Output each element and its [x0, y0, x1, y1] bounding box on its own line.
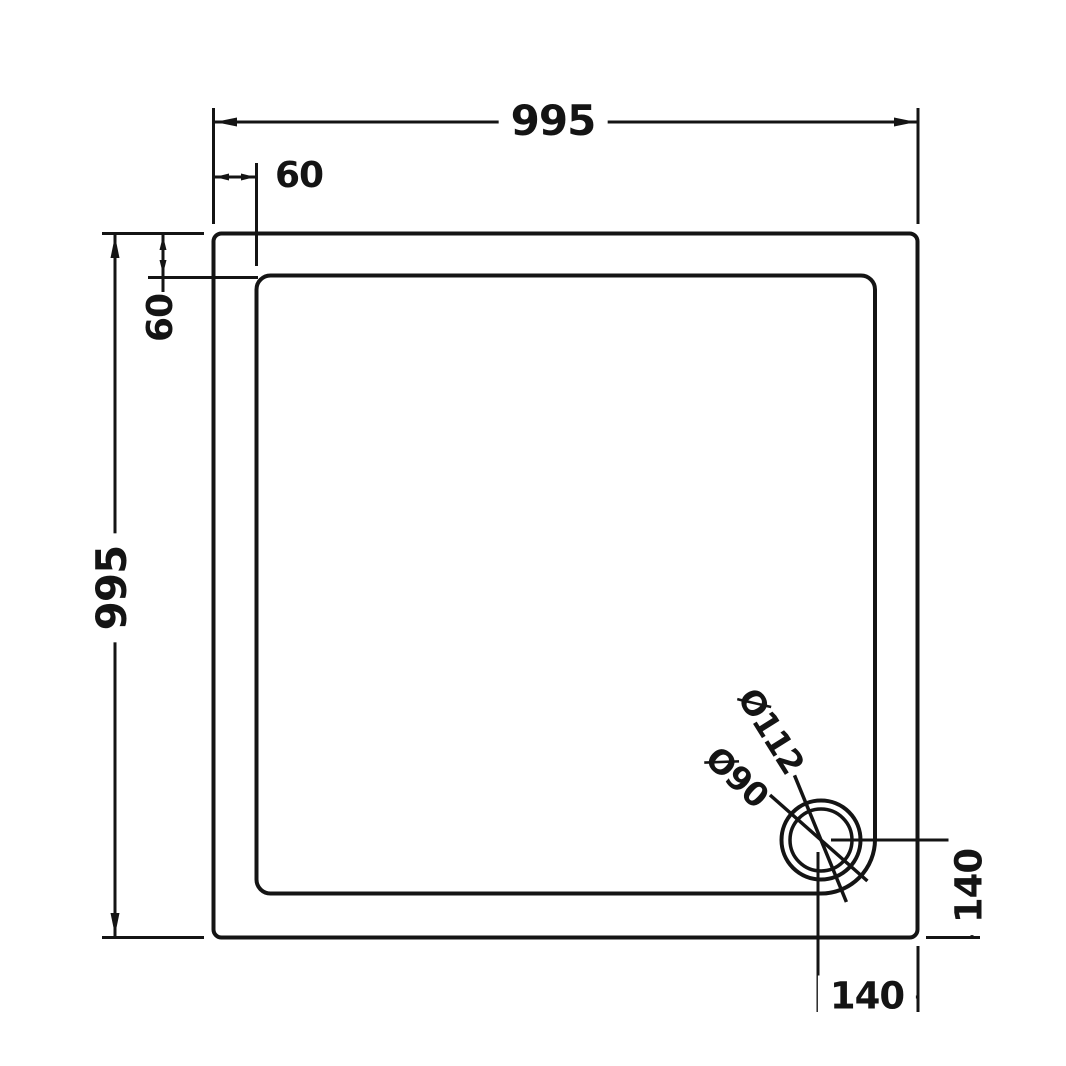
dim-label-drain-offset-bottom: 140 [949, 837, 990, 935]
dim-label-overall-width: 995 [499, 98, 608, 144]
dim-label-rim-top: 60 [275, 158, 323, 194]
dim-label-drain-offset-right: 140 [818, 976, 916, 1017]
tray-inner-edge [257, 276, 876, 894]
drawing-canvas: 995 60 60 995 Ø112 Ø90 140 140 [0, 0, 1066, 1066]
drawing-linework [0, 0, 1066, 1066]
dim-label-overall-height: 995 [89, 534, 135, 643]
dim-label-rim-left: 60 [143, 294, 179, 342]
